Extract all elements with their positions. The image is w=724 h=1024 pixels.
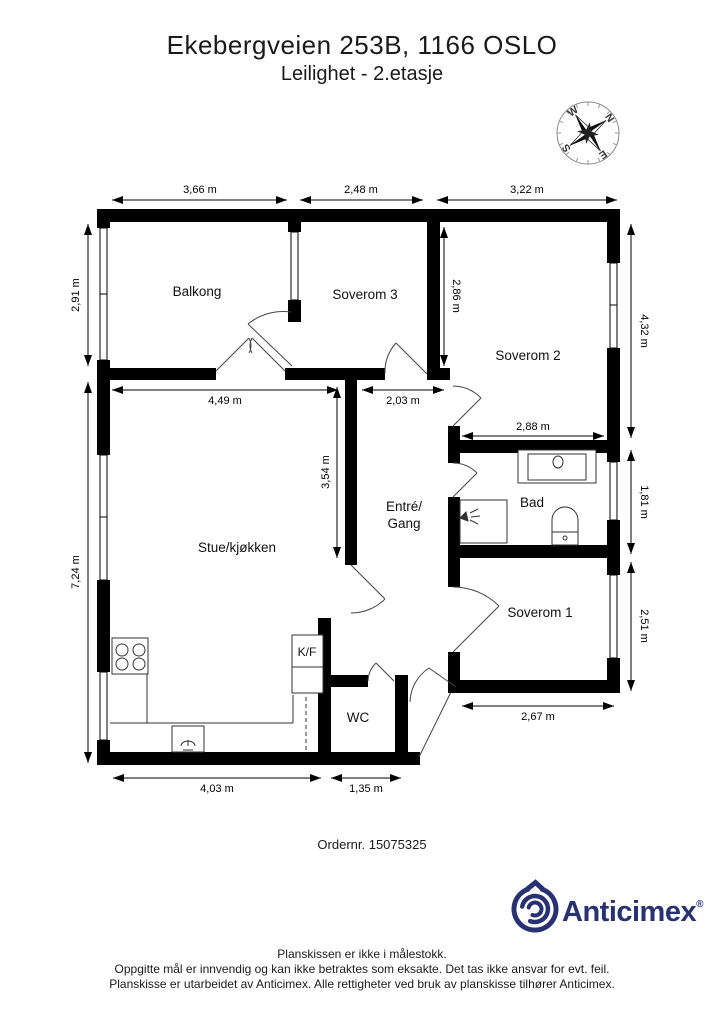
toilet-icon	[552, 507, 578, 545]
dim-stue-width: 4,49 m	[208, 395, 242, 407]
window-soverom1-right	[607, 575, 620, 658]
door-stue-entre	[351, 565, 385, 613]
dim-balkong-height: 2,91 m	[70, 278, 82, 312]
window-stue-left-upper	[97, 455, 110, 580]
room-label-balkong: Balkong	[173, 284, 222, 299]
dim-soverom1-width: 2,67 m	[521, 711, 555, 723]
dim-entre-width: 2,03 m	[386, 395, 420, 407]
room-label-bad: Bad	[520, 495, 544, 510]
dim-entre-height: 3,54 m	[320, 455, 332, 489]
room-label-soverom3: Soverom 3	[332, 287, 397, 302]
room-label-soverom2: Soverom 2	[495, 348, 560, 363]
footer-line-1: Planskissen er ikke i målestokk.	[0, 947, 724, 962]
dim-kitchen-width: 4,03 m	[200, 783, 234, 795]
door-soverom1	[453, 587, 499, 652]
footer-line-2: Oppgitte mål er innvendig og kan ikke be…	[0, 962, 724, 977]
dim-soverom2-height: 4,32 m	[638, 314, 650, 348]
window-balkong-left	[97, 228, 110, 360]
room-label-entre-line1: Entré/	[386, 499, 422, 514]
door-wc	[368, 663, 394, 681]
anticimex-logo-mark	[514, 883, 556, 931]
compass-rose: N E S W	[557, 102, 619, 164]
floor-plan-svg: N E S W	[0, 0, 724, 1024]
windows	[97, 228, 620, 740]
shower-icon	[460, 500, 507, 543]
room-label-kf: K/F	[298, 645, 317, 659]
window-balkong-soverom3	[288, 232, 301, 300]
door-soverom2	[453, 386, 481, 426]
door-bad	[453, 463, 477, 497]
window-stue-left-lower	[97, 672, 110, 740]
door-soverom3	[385, 343, 427, 374]
window-soverom2-right	[607, 263, 620, 348]
room-label-soverom1: Soverom 1	[507, 605, 572, 620]
room-label-stue: Stue/kjøkken	[198, 540, 276, 555]
dimension-labels: 3,66 m 2,48 m 3,22 m 2,91 m 7,24 m 4,32 …	[70, 184, 650, 795]
dim-balkong-width: 3,66 m	[183, 184, 217, 196]
dim-soverom3-width: 2,48 m	[344, 184, 378, 196]
room-labels: Balkong Soverom 3 Soverom 2 Stue/kjøkken…	[173, 284, 573, 725]
dim-soverom3-height: 2,86 m	[450, 279, 462, 313]
window-bad-right	[607, 462, 620, 520]
dim-bad-height: 1,81 m	[638, 485, 650, 519]
order-number: Ordernr. 15075325	[0, 837, 724, 852]
footer-line-3: Planskisse er utarbeidet av Anticimex. A…	[0, 977, 724, 992]
kitchen-fixtures	[110, 635, 323, 752]
room-label-entre-line2: Gang	[387, 516, 420, 531]
anticimex-logo: Anticimex®	[514, 883, 704, 931]
compass-w: W	[566, 104, 581, 120]
door-balkong-double	[216, 338, 285, 371]
door-soverom3-balkong	[248, 311, 292, 366]
dim-wc-width: 1,35 m	[349, 783, 383, 795]
anticimex-logo-text: Anticimex®	[562, 896, 704, 928]
floor-plan-page: Ekebergveien 253B, 1166 OSLO Leilighet -…	[0, 0, 724, 1024]
kitchen-sink-icon	[172, 726, 204, 752]
kitchen-counter	[110, 674, 293, 723]
dim-stue-height: 7,24 m	[70, 555, 82, 589]
dim-soverom1-height: 2,51 m	[638, 609, 650, 643]
dim-soverom2-width: 3,22 m	[510, 184, 544, 196]
dim-bad-width: 2,88 m	[516, 421, 550, 433]
footer-disclaimer: Planskissen er ikke i målestokk. Oppgitt…	[0, 947, 724, 992]
room-label-wc: WC	[347, 710, 370, 725]
